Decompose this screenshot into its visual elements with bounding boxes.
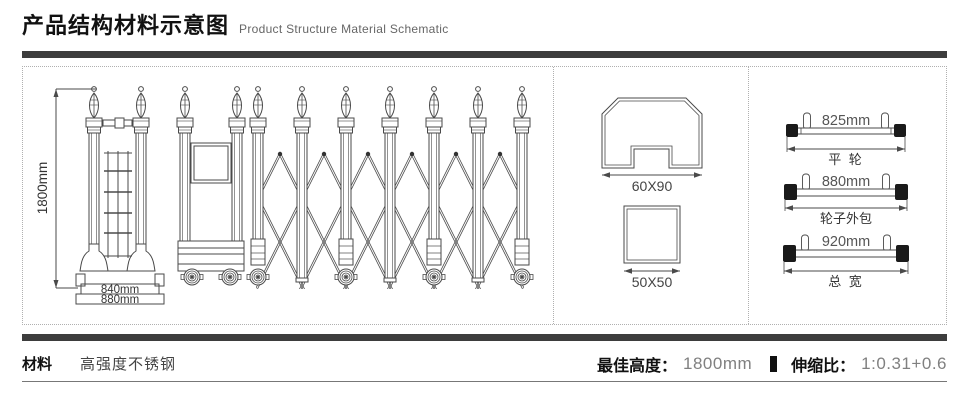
wheel-specs-panel: 825mm 平 轮 880mm xyxy=(748,67,946,324)
ratio-value: 1:0.31+0.6 xyxy=(861,354,947,374)
base-width-dimensions: 840mm 880mm xyxy=(76,284,164,306)
spec-group: 最佳高度： 1800mm 伸缩比： 1:0.31+0.6 xyxy=(597,352,947,376)
top-divider-bar xyxy=(22,51,947,58)
material-label: 材料 xyxy=(22,353,52,374)
post-profile-label: 50X50 xyxy=(632,274,673,290)
page-header: 产品结构材料示意图 Product Structure Material Sch… xyxy=(22,8,449,40)
wheel-wrap-label: 轮子外包 xyxy=(820,211,872,226)
page-subtitle: Product Structure Material Schematic xyxy=(239,22,449,36)
height-dimension-label: 1800mm xyxy=(35,162,50,215)
wheel-wrap-value: 880mm xyxy=(822,174,870,190)
footer-spec-row: 材料 高强度不锈钢 最佳高度： 1800mm 伸缩比： 1:0.31+0.6 xyxy=(22,346,947,382)
page-title: 产品结构材料示意图 xyxy=(22,8,229,40)
best-height-value: 1800mm xyxy=(683,354,752,374)
rail-profile-60x90 xyxy=(602,98,702,178)
best-height-label: 最佳高度： xyxy=(597,352,677,376)
gate-elevation-drawing: 1800mm xyxy=(23,67,551,324)
wheel-specs-drawing: 825mm 平 轮 880mm xyxy=(749,67,945,324)
fixed-post-assembly xyxy=(76,87,164,286)
gate-posts xyxy=(247,87,533,285)
gate-leading-frame xyxy=(177,87,245,285)
material-value: 高强度不锈钢 xyxy=(80,353,176,374)
axle-assembly-wheel-wrap: 880mm 轮子外包 xyxy=(784,174,908,226)
axle-assembly-flat-wheel: 825mm 平 轮 xyxy=(786,113,906,167)
schematic-page: 产品结构材料示意图 Product Structure Material Sch… xyxy=(0,0,968,407)
profile-sections-panel: 60X90 50X50 xyxy=(553,67,748,324)
axle-assembly-total-width: 920mm 总 宽 xyxy=(783,234,909,289)
profile-sections-drawing: 60X90 50X50 xyxy=(554,67,747,324)
flat-wheel-label: 平 轮 xyxy=(828,152,864,167)
total-width-value: 920mm xyxy=(822,234,870,250)
ratio-label: 伸缩比： xyxy=(791,352,855,376)
bottom-divider-bar xyxy=(22,334,947,341)
rail-profile-label: 60X90 xyxy=(632,178,673,194)
gate-elevation-panel: 1800mm xyxy=(23,67,553,324)
drawing-area: 1800mm xyxy=(22,66,947,325)
flat-wheel-value: 825mm xyxy=(822,113,870,129)
total-width-label: 总 宽 xyxy=(828,274,864,289)
spec-separator-bar xyxy=(770,356,777,372)
outer-width-label: 880mm xyxy=(101,294,139,306)
post-profile-50x50 xyxy=(624,206,680,274)
